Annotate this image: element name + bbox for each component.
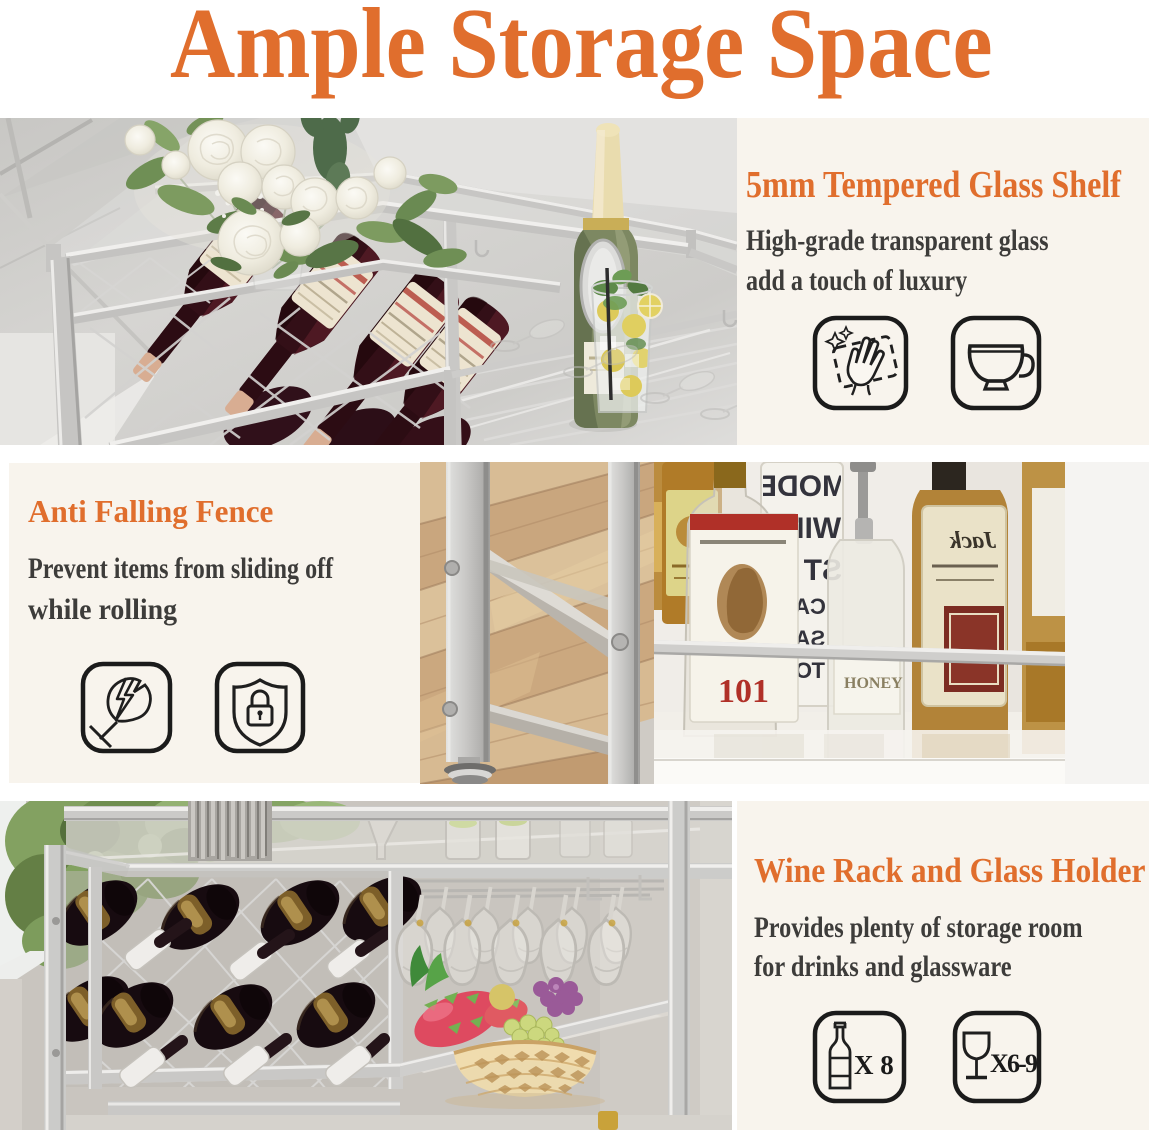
svg-text:Jack: Jack <box>949 528 997 554</box>
svg-text:X 8: X 8 <box>854 1050 894 1080</box>
svg-text:101: 101 <box>718 673 769 710</box>
svg-text:MODE: MODE <box>757 470 847 503</box>
svg-text:HONEY: HONEY <box>844 675 903 692</box>
svg-text:X6-9: X6-9 <box>990 1049 1038 1078</box>
